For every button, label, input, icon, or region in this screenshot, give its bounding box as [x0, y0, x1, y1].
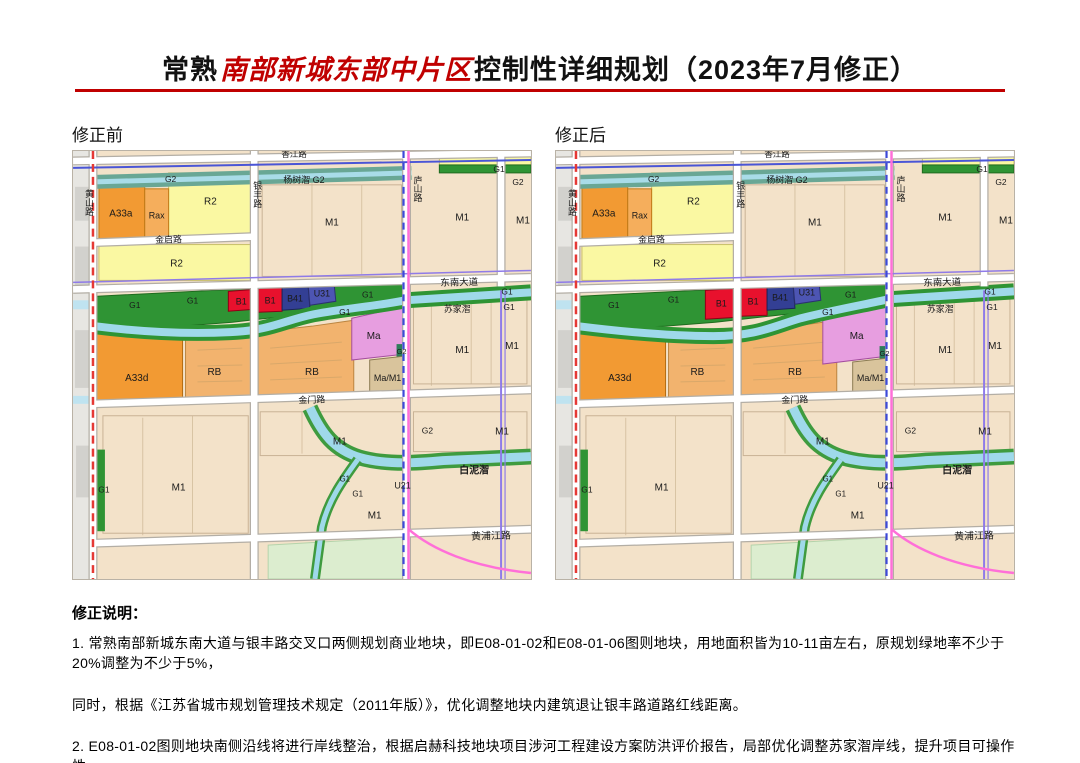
- label-g2: G2: [648, 174, 660, 184]
- label-huangpujiang-road: 黄浦江路: [954, 529, 994, 543]
- label-yangshuzhi: 杨树潪 G2: [766, 174, 807, 185]
- label-m1: M1: [938, 345, 952, 356]
- label-m1: M1: [455, 345, 469, 356]
- label-g1: G1: [581, 484, 593, 494]
- label-m1: M1: [808, 218, 822, 229]
- label-xiangjiang-road: 香江路: [281, 151, 307, 159]
- label-g1: G1: [503, 302, 515, 312]
- label-b1: B1: [748, 296, 759, 306]
- label-m1: M1: [368, 510, 382, 521]
- label-b1: B1: [236, 296, 247, 306]
- label-bainizhi-river: 白泥潪: [942, 463, 972, 476]
- label-yinfeng-road: 银丰路: [252, 180, 262, 209]
- map-after-svg: G2 杨树潪 G2 香江路 A33a Rax R2 R2 金启路 G1 G2 M…: [556, 151, 1014, 579]
- label-m1: M1: [988, 341, 1002, 352]
- label-g2: G2: [165, 174, 177, 184]
- label-g1: G1: [835, 489, 846, 498]
- label-r2: R2: [653, 258, 666, 269]
- label-g1: G1: [986, 302, 998, 312]
- label-g2: G2: [512, 177, 524, 187]
- label-jinmen-road: 金门路: [781, 393, 808, 405]
- title-highlight: 南部新城东部中片区: [218, 55, 474, 86]
- label-g1: G1: [984, 286, 996, 296]
- label-g1: G1: [129, 300, 141, 310]
- map-after: G2 杨树潪 G2 香江路 A33a Rax R2 R2 金启路 G1 G2 M…: [555, 150, 1015, 580]
- label-b1: B1: [265, 295, 276, 305]
- label-m1: M1: [516, 216, 530, 227]
- label-ma-m1: Ma/M1: [857, 373, 884, 383]
- label-a33d: A33d: [125, 373, 148, 384]
- label-g1: G1: [976, 164, 988, 174]
- label-m1: M1: [172, 482, 186, 493]
- label-m1: M1: [505, 341, 519, 352]
- label-rb: RB: [691, 367, 705, 378]
- label-rax: Rax: [149, 211, 165, 221]
- page-title: 常熟南部新城东部中片区控制性详细规划（2023年7月修正）: [0, 48, 1080, 87]
- title-red-rule: [75, 89, 1005, 92]
- label-u31: U31: [799, 287, 815, 297]
- label-g1: G1: [339, 474, 350, 483]
- label-g1: G1: [362, 289, 374, 299]
- notes-heading: 修正说明：: [72, 602, 1017, 623]
- label-a33a: A33a: [592, 209, 616, 220]
- title-suffix: 控制性详细规划（2023年7月修正）: [474, 55, 918, 85]
- label-huangpujiang-road: 黄浦江路: [471, 529, 511, 543]
- label-a33a: A33a: [109, 209, 133, 220]
- label-g1: G1: [493, 164, 505, 174]
- label-sujiazhi-river: 苏家潪: [927, 303, 954, 314]
- label-g1: G1: [187, 295, 199, 305]
- label-jinqi-road: 金启路: [155, 233, 182, 245]
- label-u21: U21: [394, 480, 410, 490]
- label-g2: G2: [880, 349, 890, 358]
- label-lushan-road: 庐山路: [412, 174, 422, 203]
- label-rb: RB: [208, 367, 222, 378]
- label-u21: U21: [877, 480, 893, 490]
- label-huangshan-road: 黄山路: [84, 188, 94, 217]
- label-dongnan-road: 东南大道: [440, 276, 479, 289]
- label-g1: G1: [98, 484, 110, 494]
- caption-before: 修正前: [72, 121, 123, 146]
- label-g1: G1: [352, 489, 363, 498]
- label-b41: B41: [772, 292, 788, 302]
- label-g1: G1: [608, 300, 620, 310]
- planning-document-page: 常熟南部新城东部中片区控制性详细规划（2023年7月修正） 修正前 修正后: [0, 0, 1080, 763]
- label-u31: U31: [314, 288, 330, 298]
- label-g2: G2: [397, 347, 407, 356]
- label-g1: G1: [822, 307, 834, 317]
- label-b41: B41: [287, 293, 303, 303]
- label-m1: M1: [333, 437, 347, 448]
- label-g2: G2: [995, 177, 1007, 187]
- label-huangshan-road: 黄山路: [567, 188, 577, 217]
- label-rb: RB: [305, 367, 319, 378]
- label-g1: G1: [845, 289, 857, 299]
- label-ma-m1: Ma/M1: [374, 373, 401, 383]
- label-r2: R2: [170, 258, 183, 269]
- label-jinmen-road: 金门路: [298, 393, 325, 405]
- label-g1: G1: [501, 286, 513, 296]
- label-g1: G1: [668, 294, 680, 304]
- label-m1: M1: [495, 427, 509, 438]
- label-dongnan-road: 东南大道: [923, 276, 962, 289]
- label-m1: M1: [938, 213, 952, 224]
- label-yinfeng-road: 银丰路: [735, 180, 745, 209]
- label-lushan-road: 庐山路: [895, 174, 905, 203]
- label-a33d: A33d: [608, 373, 631, 384]
- label-m1: M1: [455, 213, 469, 224]
- label-m1: M1: [851, 510, 865, 521]
- notes-line-1: 1. 常熟南部新城东南大道与银丰路交叉口两侧规划商业地块，即E08-01-02和…: [72, 633, 1017, 674]
- label-rax: Rax: [632, 211, 648, 221]
- map-before-svg: G2 杨树潪 G2 香江路 A33a Rax R2 R2 金启路 G1 G2 M…: [73, 151, 531, 579]
- label-m1: M1: [978, 427, 992, 438]
- label-b1: B1: [716, 298, 727, 308]
- label-m1: M1: [655, 482, 669, 493]
- notes-line-2: 同时，根据《江苏省城市规划管理技术规定（2011年版）》，优化调整地块内建筑退让…: [72, 695, 1017, 715]
- label-xiangjiang-road: 香江路: [764, 151, 790, 159]
- revision-notes: 修正说明： 1. 常熟南部新城东南大道与银丰路交叉口两侧规划商业地块，即E08-…: [72, 602, 1017, 763]
- label-r2: R2: [687, 197, 700, 208]
- notes-line-3: 2. E08-01-02图则地块南侧沿线将进行岸线整治，根据启赫科技地块项目涉河…: [72, 736, 1017, 763]
- label-g1: G1: [339, 307, 351, 317]
- label-m1: M1: [325, 218, 339, 229]
- label-sujiazhi-river: 苏家潪: [444, 303, 471, 314]
- label-ma: Ma: [367, 331, 381, 342]
- label-m1: M1: [999, 216, 1013, 227]
- title-prefix: 常熟: [162, 55, 218, 85]
- label-g2: G2: [905, 426, 917, 436]
- caption-after: 修正后: [555, 121, 606, 146]
- label-r2: R2: [204, 197, 217, 208]
- map-before: G2 杨树潪 G2 香江路 A33a Rax R2 R2 金启路 G1 G2 M…: [72, 150, 532, 580]
- label-m1: M1: [816, 437, 830, 448]
- label-jinqi-road: 金启路: [638, 233, 665, 245]
- label-yangshuzhi: 杨树潪 G2: [283, 174, 324, 185]
- label-ma: Ma: [850, 331, 864, 342]
- label-g2: G2: [422, 426, 434, 436]
- label-bainizhi-river: 白泥潪: [459, 463, 489, 476]
- label-g1: G1: [822, 474, 833, 483]
- label-rb: RB: [788, 367, 802, 378]
